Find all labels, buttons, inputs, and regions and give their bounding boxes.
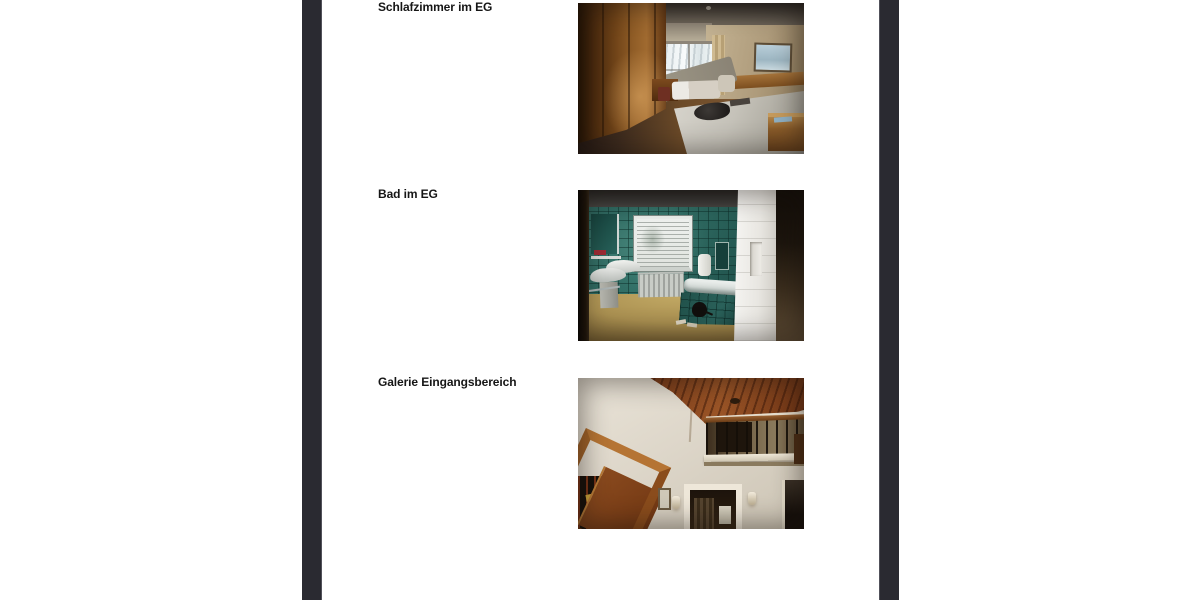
caption-bedroom: Schlafzimmer im EG xyxy=(378,0,492,14)
caption-bathroom: Bad im EG xyxy=(378,187,438,201)
caption-gallery: Galerie Eingangsbereich xyxy=(378,375,516,389)
screenshot-root: Schlafzimmer im EG xyxy=(0,0,1200,600)
photo-entrance-gallery xyxy=(578,378,804,529)
document-page: Schlafzimmer im EG xyxy=(322,0,879,600)
photo-vignette xyxy=(578,190,804,341)
viewer-backdrop: Schlafzimmer im EG xyxy=(302,0,899,600)
photo-row-gallery: Galerie Eingangsbereich xyxy=(322,375,879,535)
photo-row-bedroom: Schlafzimmer im EG xyxy=(322,0,879,160)
photo-bedroom xyxy=(578,3,804,154)
photo-row-bathroom: Bad im EG xyxy=(322,187,879,347)
photo-vignette xyxy=(578,3,804,154)
photo-bathroom xyxy=(578,190,804,341)
photo-vignette xyxy=(578,378,804,529)
